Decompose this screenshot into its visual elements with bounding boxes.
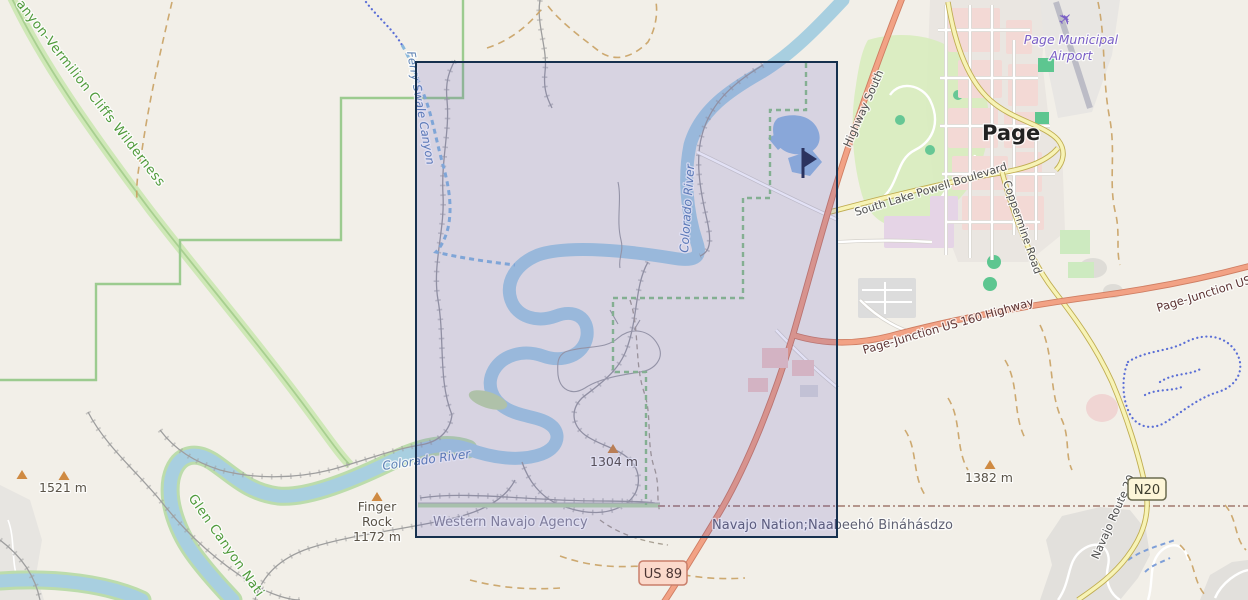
peak-finger-rock-name1: Finger — [358, 499, 397, 514]
label-airport-line1: Page Municipal — [1024, 32, 1119, 47]
shield-n20: N20 — [1128, 478, 1166, 500]
peak-1382: 1382 m — [965, 470, 1013, 485]
svg-text:N20: N20 — [1134, 483, 1160, 498]
label-page-city: Page — [982, 121, 1040, 145]
label-airport-line2: Airport — [1049, 48, 1094, 63]
selection-overlay[interactable] — [415, 61, 838, 538]
map-canvas[interactable]: anyon-Vermilion Cliffs Wilderness Glen C… — [0, 0, 1248, 600]
big-box-store — [858, 278, 916, 318]
svg-text:US 89: US 89 — [644, 567, 682, 582]
shield-us89: US 89 — [639, 561, 687, 585]
peak-finger-rock-name2: Rock — [362, 514, 393, 529]
peak-finger-rock-elev: 1172 m — [353, 529, 401, 544]
peak-1521: 1521 m — [39, 480, 87, 495]
